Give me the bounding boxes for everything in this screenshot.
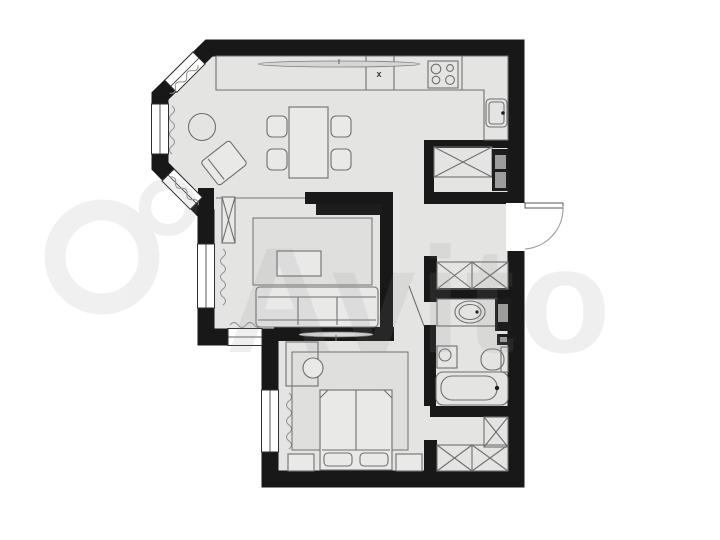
dining-chair xyxy=(267,149,287,170)
dining-chair xyxy=(331,116,351,137)
fridge-icon xyxy=(492,149,509,191)
dining-table xyxy=(289,107,328,178)
wall-closet-left xyxy=(424,140,434,204)
nightstand xyxy=(396,454,422,471)
entrance-door-leaf xyxy=(525,203,563,208)
dining-chair xyxy=(331,149,351,170)
living-room-window xyxy=(198,244,215,308)
tv-icon xyxy=(316,204,382,215)
double-bed xyxy=(320,390,392,470)
dishwasher-mark: x xyxy=(376,69,381,79)
bedroom-window xyxy=(262,390,279,452)
wall-bathroom-bottom xyxy=(430,406,510,417)
floor-plan: x xyxy=(0,0,720,540)
watermark-text: Avito xyxy=(225,216,614,384)
dining-chair xyxy=(267,116,287,137)
wall-bay-junction xyxy=(198,188,214,220)
watermark-logo-ring xyxy=(145,184,191,230)
wall-kitchen-living xyxy=(305,192,393,204)
bay-window-middle xyxy=(152,104,169,154)
wall-bedroom-dressing xyxy=(424,440,437,479)
watermark-logo-ring xyxy=(55,210,149,304)
floor-plan-drawing: x xyxy=(0,0,720,540)
nightstand xyxy=(288,454,314,471)
wall-hallway-top xyxy=(424,192,510,204)
